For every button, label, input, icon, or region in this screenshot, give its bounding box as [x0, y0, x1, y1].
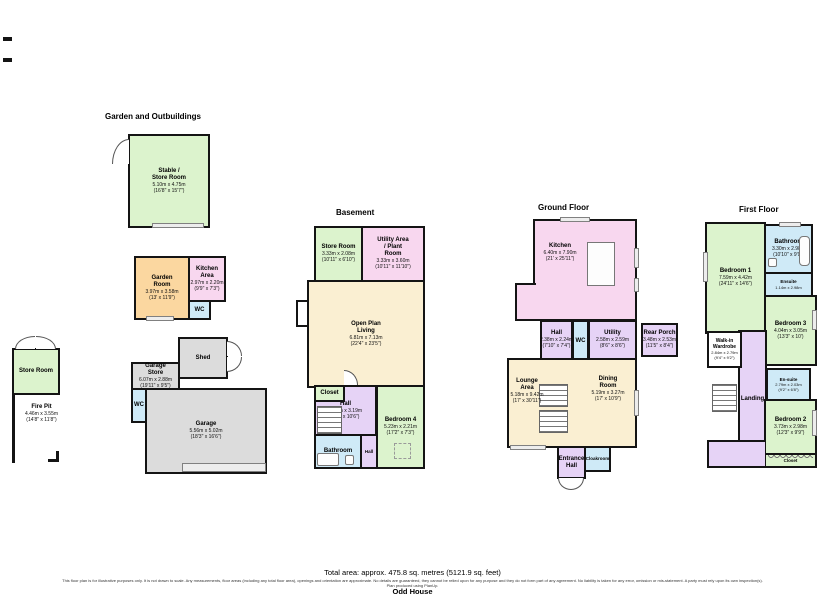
- section-title-garden: Garden and Outbuildings: [105, 112, 201, 121]
- window: [812, 310, 817, 330]
- room-name: Stable / Store Room: [152, 168, 186, 182]
- room-basement-closet: Closet: [314, 385, 345, 402]
- kitchen-island: [587, 242, 615, 286]
- stairs: [712, 384, 737, 412]
- fire-pit-label: Fire Pit 4.46m x 3.55m (14'8" x 11'8"): [14, 404, 69, 423]
- door-arc: [227, 341, 242, 356]
- wall-fragment: [3, 58, 12, 62]
- room-walkin-wardrobe: Walk-in Wardrobe 2.84m x 2.79m (9'4" x 9…: [707, 331, 742, 368]
- stairs: [539, 410, 568, 433]
- kitchen-label: Kitchen 6.40m x 7.90m (21' x 25'11"): [534, 243, 586, 262]
- door-arc: [36, 336, 56, 349]
- room-name: Kitchen: [549, 243, 571, 250]
- room-entrance-hall: Entrance Hall: [557, 446, 586, 479]
- door-arc: [558, 478, 571, 490]
- room-name: WC: [576, 338, 586, 345]
- section-title-basement: Basement: [336, 208, 374, 217]
- toilet-icon: [768, 258, 777, 267]
- room-wc-garden: WC: [188, 300, 211, 320]
- room-name: Entrance Hall: [559, 456, 585, 470]
- room-name: Rear Porch: [643, 330, 675, 337]
- room-dim-metric: 1.14m x 2.98m: [775, 285, 801, 290]
- dashed-area: [394, 443, 411, 459]
- door-arc: [15, 336, 35, 349]
- bathtub-icon: [799, 236, 810, 266]
- room-open-plan-living: Open Plan Living 6.81m x 7.13m (22'4" x …: [307, 280, 425, 388]
- room-name: Cloakroom: [586, 456, 610, 461]
- room-ensuite1: Ensuite 1.14m x 2.98m: [764, 272, 813, 297]
- room-name: Utility Area / Plant Room: [376, 237, 410, 258]
- room-dim-imperial: (16'8" x 15'7"): [154, 188, 185, 194]
- lounge-label: Lounge Area 5.18m x 9.42m (17' x 30'11"): [505, 378, 549, 404]
- window: [634, 390, 639, 416]
- room-dim-imperial: (13' x 11'9"): [149, 295, 175, 301]
- room-name: Bedroom 1: [720, 268, 751, 275]
- wall-patch: [740, 442, 765, 466]
- window: [634, 278, 639, 292]
- room-ground-wc: WC: [572, 320, 589, 363]
- room-name: Walk-in Wardrobe: [709, 339, 740, 351]
- garage-door: [182, 463, 266, 472]
- room-name: WC: [195, 307, 205, 314]
- room-dim-imperial: (11'5" x 8'4"): [646, 343, 674, 349]
- room-dim-imperial: (9'9" x 7'3"): [194, 286, 219, 292]
- door-arc: [571, 478, 584, 490]
- room-bedroom1: Bedroom 1 7.59m x 4.42m (24'11" x 14'6"): [705, 222, 766, 334]
- room-name: WC: [134, 402, 144, 409]
- room-bedroom2: Bedroom 2 3.73m x 2.98m (12'3" x 9'9"): [764, 399, 817, 455]
- room-dim-imperial: (22'4" x 23'5"): [351, 341, 382, 347]
- room-name: Kitchen Area: [190, 266, 224, 280]
- room-name: Store Room: [322, 244, 356, 251]
- room-basement-store: Store Room 3.33m x 2.08m (10'11" x 6'10"…: [314, 226, 363, 282]
- window: [634, 248, 639, 268]
- room-shed: Shed: [178, 337, 228, 379]
- total-area-text: Total area: approx. 475.8 sq. metres (51…: [0, 568, 825, 577]
- wall-segment: [56, 451, 59, 462]
- room-cloakroom: Cloakroom: [584, 446, 611, 472]
- wall-fragment: [3, 37, 12, 41]
- room-dim-imperial: (18'3" x 16'6"): [191, 434, 222, 440]
- room-stable-store: Stable / Store Room 5.10m x 4.75m (16'8"…: [128, 134, 210, 228]
- room-name: Hall: [551, 330, 562, 337]
- room-name: Garden Room: [145, 275, 179, 289]
- lightwell: [296, 300, 309, 327]
- door-arc: [227, 357, 242, 372]
- room-name: Open Plan Living: [349, 321, 383, 335]
- room-name: Bedroom 4: [385, 417, 416, 424]
- room-garden-room: Garden Room 3.97m x 3.58m (13' x 11'9"): [134, 256, 190, 320]
- window: [560, 217, 590, 222]
- window: [703, 252, 708, 282]
- room-name: Dining Room: [591, 376, 625, 390]
- toilet-icon: [345, 455, 354, 465]
- room-name: Landing: [741, 396, 764, 403]
- room-dim-imperial: (9'4" x 9'2"): [714, 355, 734, 360]
- room-name: Bedroom 2: [775, 417, 806, 424]
- house-name: Odd House: [0, 587, 825, 596]
- room-dim-imperial: (14'8" x 11'8"): [26, 417, 56, 423]
- room-name: Utility: [604, 330, 621, 337]
- room-store-room-left: Store Room: [12, 348, 60, 395]
- room-dim-imperial: (12'3" x 9'9"): [777, 430, 805, 436]
- room-name: Closet: [320, 390, 338, 397]
- room-dim-imperial: (9'2" x 6'8"): [778, 387, 798, 392]
- floorplan-canvas: Garden and Outbuildings Stable / Store R…: [0, 0, 825, 600]
- room-name: Garage Store: [139, 363, 173, 377]
- section-title-first: First Floor: [739, 205, 779, 214]
- room-ensuite2: En-suite 2.79m x 2.03m (9'2" x 6'8"): [766, 368, 811, 401]
- room-dim-imperial: (17' x 30'11"): [513, 398, 542, 404]
- room-bedroom3: Bedroom 3 4.04m x 3.05m (13'3" x 10'): [764, 295, 817, 366]
- room-dim-imperial: (10'11" x 6'10"): [322, 257, 355, 263]
- room-dim-imperial: (24'11" x 14'6"): [719, 281, 752, 287]
- door-arc: [112, 139, 129, 164]
- room-dim-imperial: (17' x 10'9"): [595, 396, 621, 402]
- bathtub-icon: [317, 453, 339, 466]
- window: [779, 222, 801, 227]
- room-name: Bedroom 3: [775, 321, 806, 328]
- dining-label: Dining Room 5.19m x 3.27m (17' x 10'9"): [586, 376, 630, 402]
- room-kitchen-lower: [515, 283, 637, 321]
- window: [146, 316, 174, 321]
- room-garage-store: Garage Store 6.07m x 2.88m (19'11" x 9'5…: [131, 362, 180, 391]
- room-dim-imperial: (8'6" x 8'6"): [600, 343, 625, 349]
- room-name: Fire Pit: [31, 404, 51, 411]
- hanger-rail-icon: [768, 455, 813, 460]
- room-name: Hall: [365, 449, 373, 454]
- room-name: Lounge Area: [510, 378, 544, 392]
- room-name: Garage: [196, 421, 217, 428]
- room-utility: Utility 2.58m x 2.59m (8'6" x 8'6"): [588, 320, 637, 360]
- stairs: [317, 406, 342, 434]
- room-dim-imperial: (21' x 25'11"): [546, 256, 575, 262]
- room-name: Shed: [196, 355, 211, 362]
- room-name: Store Room: [19, 368, 53, 375]
- room-dim-imperial: (7'10" x 7'4"): [543, 343, 571, 349]
- room-kitchen-area: Kitchen Area 2.97m x 2.20m (9'9" x 7'3"): [188, 256, 226, 302]
- room-dim-imperial: (13'3" x 10'): [777, 334, 803, 340]
- room-ground-hall: Hall 2.38m x 2.24m (7'10" x 7'4"): [540, 320, 573, 360]
- section-title-ground: Ground Floor: [538, 203, 589, 212]
- room-dim-imperial: (17'2" x 7'3"): [387, 430, 415, 436]
- room-garage: Garage 5.56m x 5.02m (18'3" x 16'6"): [145, 388, 267, 474]
- window: [510, 445, 546, 450]
- window: [812, 410, 817, 436]
- room-dim-imperial: (10'11" x 11'10"): [375, 264, 411, 270]
- window: [152, 223, 204, 228]
- room-utility-plant: Utility Area / Plant Room 3.33m x 3.60m …: [361, 226, 425, 282]
- room-rear-porch: Rear Porch 3.48m x 2.53m (11'5" x 8'4"): [641, 323, 678, 357]
- wall-patch: [536, 281, 634, 287]
